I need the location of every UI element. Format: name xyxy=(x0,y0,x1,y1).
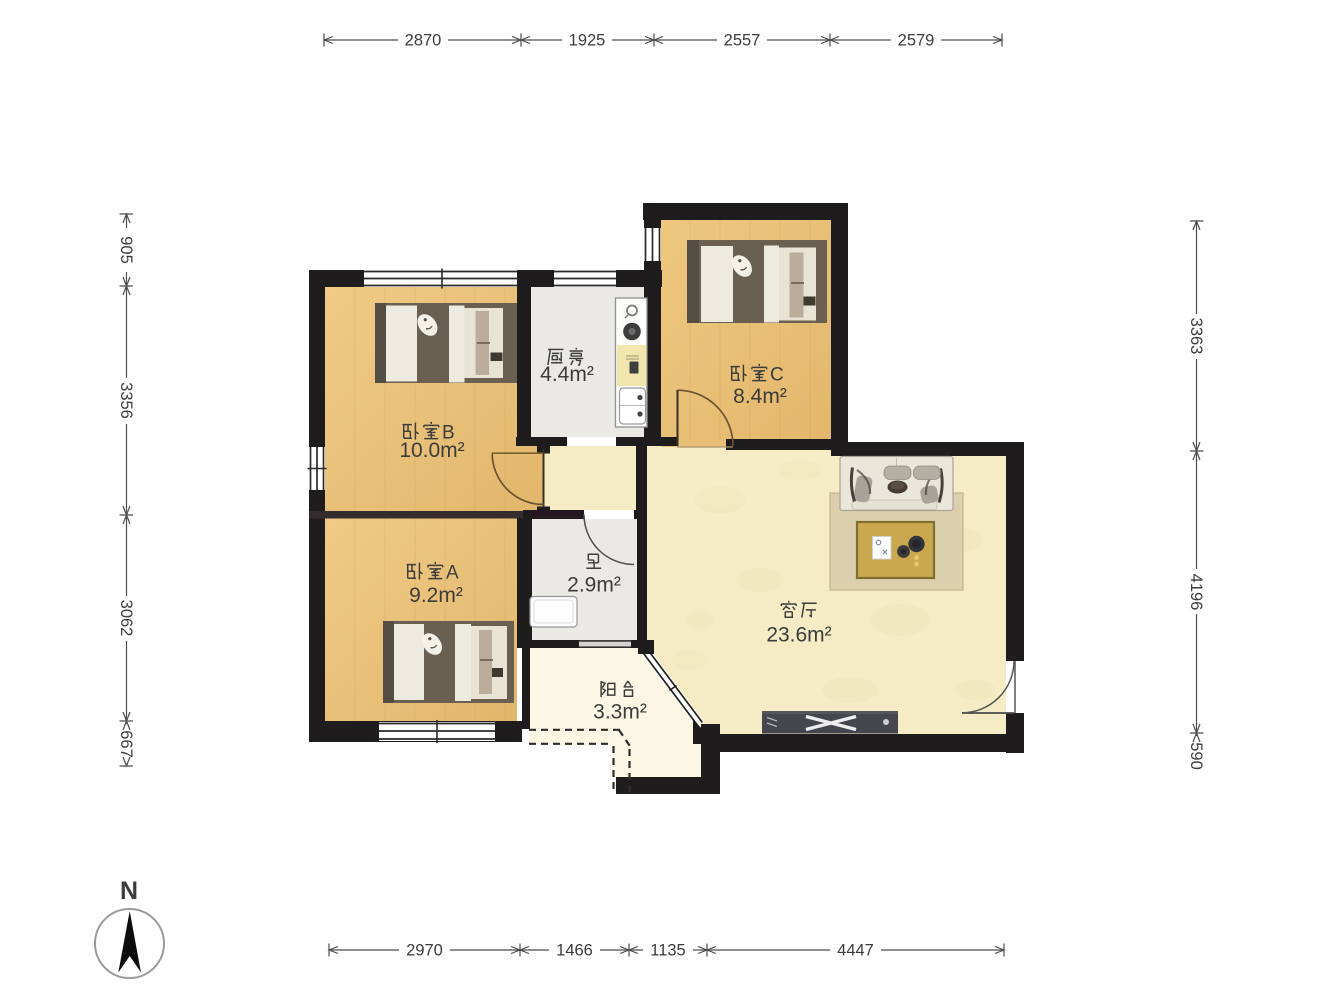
svg-text:9.2m²: 9.2m² xyxy=(409,584,463,607)
svg-text:A: A xyxy=(446,563,459,584)
svg-text:4196: 4196 xyxy=(1187,574,1205,611)
svg-text:3.3m²: 3.3m² xyxy=(593,701,647,724)
svg-text:23.6m²: 23.6m² xyxy=(766,624,831,647)
svg-text:3356: 3356 xyxy=(117,382,135,419)
svg-text:10.0m²: 10.0m² xyxy=(399,439,464,462)
svg-text:4447: 4447 xyxy=(837,942,874,960)
svg-text:2579: 2579 xyxy=(898,32,935,50)
svg-text:590: 590 xyxy=(1187,742,1205,770)
svg-text:8.4m²: 8.4m² xyxy=(733,385,787,408)
svg-text:1135: 1135 xyxy=(650,942,685,960)
svg-text:C: C xyxy=(770,365,784,386)
svg-text:3062: 3062 xyxy=(117,600,135,637)
svg-text:905: 905 xyxy=(117,236,135,264)
svg-text:2870: 2870 xyxy=(405,32,442,50)
svg-text:3363: 3363 xyxy=(1187,318,1205,355)
svg-text:1925: 1925 xyxy=(569,32,606,50)
svg-text:N: N xyxy=(120,877,138,905)
svg-text:667: 667 xyxy=(117,730,135,758)
svg-text:2970: 2970 xyxy=(406,942,443,960)
svg-text:2.9m²: 2.9m² xyxy=(567,574,621,597)
svg-text:1466: 1466 xyxy=(556,942,593,960)
svg-text:4.4m²: 4.4m² xyxy=(540,363,594,386)
svg-text:2557: 2557 xyxy=(724,32,761,50)
